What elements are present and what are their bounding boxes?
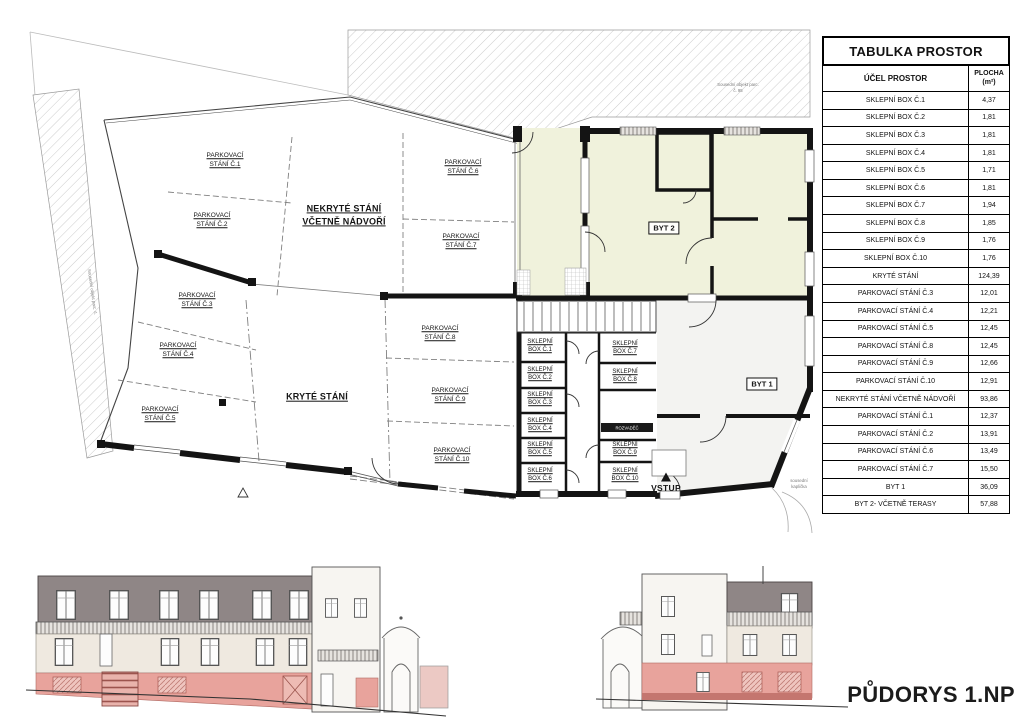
drawing-sheet: PARKOVACÍ STÁNÍ Č.1 PARKOVACÍ STÁNÍ Č.2 … xyxy=(0,0,1024,724)
room-table-title: TABULKA PROSTOR xyxy=(822,36,1010,66)
table-row: PARKOVACÍ STÁNÍ Č.112,37 xyxy=(823,408,1009,426)
row-area: 1,76 xyxy=(968,250,1009,267)
row-purpose: PARKOVACÍ STÁNÍ Č.3 xyxy=(823,285,968,302)
entrance-arrow-icon xyxy=(661,473,671,482)
cellar-box-label-3: SKLEPNÍ BOX Č.3 xyxy=(522,392,558,408)
column-header-area-unit: (m²) xyxy=(982,79,995,87)
table-row: SKLEPNÍ BOX Č.51,71 xyxy=(823,162,1009,180)
chapel-note: sousední kaplička xyxy=(790,478,807,490)
covered-parking-area-label: KRYTÉ STÁNÍ xyxy=(252,391,382,404)
row-purpose: PARKOVACÍ STÁNÍ Č.1 xyxy=(823,408,968,425)
table-row: PARKOVACÍ STÁNÍ Č.812,45 xyxy=(823,338,1009,356)
parking-spot-label-6: PARKOVACÍ STÁNÍ Č.6 xyxy=(438,159,488,177)
parking-spot-label-3: PARKOVACÍ STÁNÍ Č.3 xyxy=(172,292,222,310)
table-row: BYT 2- VČETNĚ TERASY57,88 xyxy=(823,496,1009,513)
row-area: 13,49 xyxy=(968,444,1009,461)
table-row: KRYTÉ STÁNÍ124,39 xyxy=(823,268,1009,286)
table-row: SKLEPNÍ BOX Č.91,76 xyxy=(823,233,1009,251)
row-area: 12,66 xyxy=(968,356,1009,373)
row-area: 1,81 xyxy=(968,145,1009,162)
table-row: BYT 136,09 xyxy=(823,479,1009,497)
row-purpose: BYT 2- VČETNĚ TERASY xyxy=(823,496,968,513)
elevation-south xyxy=(26,567,448,716)
parking-spot-label-4: PARKOVACÍ STÁNÍ Č.4 xyxy=(153,342,203,360)
row-purpose: SKLEPNÍ BOX Č.5 xyxy=(823,162,968,179)
row-purpose: SKLEPNÍ BOX Č.4 xyxy=(823,145,968,162)
row-area: 1,76 xyxy=(968,233,1009,250)
table-row: PARKOVACÍ STÁNÍ Č.312,01 xyxy=(823,285,1009,303)
table-row: PARKOVACÍ STÁNÍ Č.613,49 xyxy=(823,444,1009,462)
table-row: SKLEPNÍ BOX Č.71,94 xyxy=(823,197,1009,215)
entrance-label: VSTUP xyxy=(651,483,681,493)
sheet-title: PŮDORYS 1.NP xyxy=(847,682,1015,708)
row-area: 124,39 xyxy=(968,268,1009,285)
table-row: SKLEPNÍ BOX Č.14,37 xyxy=(823,92,1009,110)
row-purpose: PARKOVACÍ STÁNÍ Č.9 xyxy=(823,356,968,373)
table-row: PARKOVACÍ STÁNÍ Č.912,66 xyxy=(823,356,1009,374)
row-area: 12,21 xyxy=(968,303,1009,320)
arch-gate-right xyxy=(601,615,645,708)
staircase xyxy=(517,301,656,332)
apartment-2-label: BYT 2 xyxy=(648,222,679,235)
cellar-box-label-10: SKLEPNÍ BOX Č.10 xyxy=(607,468,643,484)
row-purpose: PARKOVACÍ STÁNÍ Č.5 xyxy=(823,321,968,338)
column-header-area-text: PLOCHA xyxy=(974,70,1004,78)
elevation-east xyxy=(596,566,848,710)
row-area: 1,85 xyxy=(968,215,1009,232)
cellar-box-label-7: SKLEPNÍ BOX Č.7 xyxy=(607,341,643,357)
table-row: SKLEPNÍ BOX Č.41,81 xyxy=(823,145,1009,163)
table-row: SKLEPNÍ BOX Č.61,81 xyxy=(823,180,1009,198)
room-table-body: SKLEPNÍ BOX Č.14,37SKLEPNÍ BOX Č.21,81SK… xyxy=(822,92,1010,514)
row-purpose: SKLEPNÍ BOX Č.6 xyxy=(823,180,968,197)
parking-spot-label-10: PARKOVACÍ STÁNÍ Č.10 xyxy=(427,447,477,465)
row-purpose: NEKRYTÉ STÁNÍ VČETNĚ NÁDVOŘÍ xyxy=(823,391,968,408)
table-row: SKLEPNÍ BOX Č.101,76 xyxy=(823,250,1009,268)
row-purpose: SKLEPNÍ BOX Č.8 xyxy=(823,215,968,232)
column-header-purpose: ÚČEL PROSTOR xyxy=(823,66,968,91)
row-area: 4,37 xyxy=(968,92,1009,109)
kaplicka-outline xyxy=(772,488,812,533)
table-row: SKLEPNÍ BOX Č.31,81 xyxy=(823,127,1009,145)
row-area: 57,88 xyxy=(968,496,1009,513)
room-table-header: ÚČEL PROSTOR PLOCHA (m²) xyxy=(822,66,1010,92)
row-area: 1,81 xyxy=(968,127,1009,144)
row-area: 36,09 xyxy=(968,479,1009,496)
structural-columns xyxy=(97,250,388,475)
cellar-box-label-4: SKLEPNÍ BOX Č.4 xyxy=(522,418,558,434)
arch-gate-left xyxy=(382,616,448,712)
row-purpose: PARKOVACÍ STÁNÍ Č.4 xyxy=(823,303,968,320)
table-row: NEKRYTÉ STÁNÍ VČETNĚ NÁDVOŘÍ93,86 xyxy=(823,391,1009,409)
row-area: 12,01 xyxy=(968,285,1009,302)
row-area: 1,81 xyxy=(968,180,1009,197)
table-row: PARKOVACÍ STÁNÍ Č.412,21 xyxy=(823,303,1009,321)
row-purpose: PARKOVACÍ STÁNÍ Č.8 xyxy=(823,338,968,355)
row-purpose: SKLEPNÍ BOX Č.10 xyxy=(823,250,968,267)
row-purpose: PARKOVACÍ STÁNÍ Č.7 xyxy=(823,461,968,478)
table-row: SKLEPNÍ BOX Č.81,85 xyxy=(823,215,1009,233)
cellar-box-label-6: SKLEPNÍ BOX Č.6 xyxy=(522,468,558,484)
row-purpose: SKLEPNÍ BOX Č.7 xyxy=(823,197,968,214)
row-purpose: SKLEPNÍ BOX Č.9 xyxy=(823,233,968,250)
row-purpose: SKLEPNÍ BOX Č.2 xyxy=(823,110,968,127)
apartment-1-label: BYT 1 xyxy=(746,378,777,391)
row-area: 12,37 xyxy=(968,408,1009,425)
row-purpose: SKLEPNÍ BOX Č.3 xyxy=(823,127,968,144)
neighbor-parcel-note-top: Sousední objekt parc. č. 95 xyxy=(717,82,759,94)
row-purpose: SKLEPNÍ BOX Č.1 xyxy=(823,92,968,109)
switchboard-label: ROZVADĚČ xyxy=(601,426,653,431)
parking-spot-label-5: PARKOVACÍ STÁNÍ Č.5 xyxy=(135,406,185,424)
row-area: 93,86 xyxy=(968,391,1009,408)
x-braced-door xyxy=(283,676,307,704)
table-row: PARKOVACÍ STÁNÍ Č.1012,91 xyxy=(823,373,1009,391)
row-area: 12,91 xyxy=(968,373,1009,390)
row-purpose: BYT 1 xyxy=(823,479,968,496)
row-purpose: KRYTÉ STÁNÍ xyxy=(823,268,968,285)
table-row: PARKOVACÍ STÁNÍ Č.213,91 xyxy=(823,426,1009,444)
row-area: 15,50 xyxy=(968,461,1009,478)
parking-spot-label-7: PARKOVACÍ STÁNÍ Č.7 xyxy=(436,233,486,251)
row-purpose: PARKOVACÍ STÁNÍ Č.10 xyxy=(823,373,968,390)
row-purpose: PARKOVACÍ STÁNÍ Č.2 xyxy=(823,426,968,443)
row-area: 13,91 xyxy=(968,426,1009,443)
row-area: 1,81 xyxy=(968,110,1009,127)
row-area: 1,94 xyxy=(968,197,1009,214)
cellar-box-label-9: SKLEPNÍ BOX Č.9 xyxy=(607,442,643,458)
column-header-area: PLOCHA (m²) xyxy=(968,66,1009,91)
parking-spot-label-8: PARKOVACÍ STÁNÍ Č.8 xyxy=(415,325,465,343)
cellar-box-label-1: SKLEPNÍ BOX Č.1 xyxy=(522,339,558,355)
row-area: 12,45 xyxy=(968,338,1009,355)
row-purpose: PARKOVACÍ STÁNÍ Č.6 xyxy=(823,444,968,461)
room-table: TABULKA PROSTOR ÚČEL PROSTOR PLOCHA (m²)… xyxy=(822,36,1010,514)
table-row: SKLEPNÍ BOX Č.21,81 xyxy=(823,110,1009,128)
table-row: PARKOVACÍ STÁNÍ Č.715,50 xyxy=(823,461,1009,479)
parking-spot-label-1: PARKOVACÍ STÁNÍ Č.1 xyxy=(200,152,250,170)
parking-spot-label-9: PARKOVACÍ STÁNÍ Č.9 xyxy=(425,387,475,405)
cellar-box-label-8: SKLEPNÍ BOX Č.8 xyxy=(607,369,643,385)
parking-dividers xyxy=(118,133,514,499)
row-area: 1,71 xyxy=(968,162,1009,179)
row-area: 12,45 xyxy=(968,321,1009,338)
cellar-box-label-5: SKLEPNÍ BOX Č.5 xyxy=(522,442,558,458)
parking-spot-label-2: PARKOVACÍ STÁNÍ Č.2 xyxy=(187,212,237,230)
open-parking-area-label: NEKRYTÉ STÁNÍ VČETNĚ NÁDVOŘÍ xyxy=(279,202,409,227)
cellar-box-label-2: SKLEPNÍ BOX Č.2 xyxy=(522,367,558,383)
table-row: PARKOVACÍ STÁNÍ Č.512,45 xyxy=(823,321,1009,339)
